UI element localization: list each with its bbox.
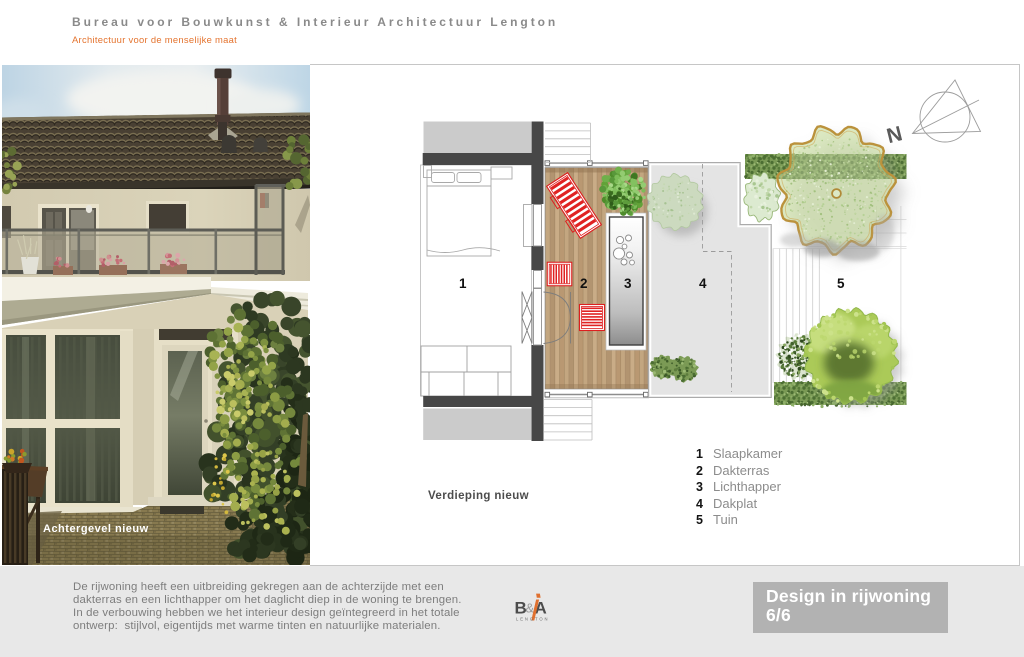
svg-text:5: 5 — [837, 276, 845, 291]
svg-text:4: 4 — [699, 276, 707, 291]
svg-text:3: 3 — [624, 276, 632, 291]
svg-text:LENGTON: LENGTON — [516, 617, 549, 622]
svg-text:2: 2 — [580, 276, 588, 291]
svg-text:1: 1 — [459, 276, 467, 291]
